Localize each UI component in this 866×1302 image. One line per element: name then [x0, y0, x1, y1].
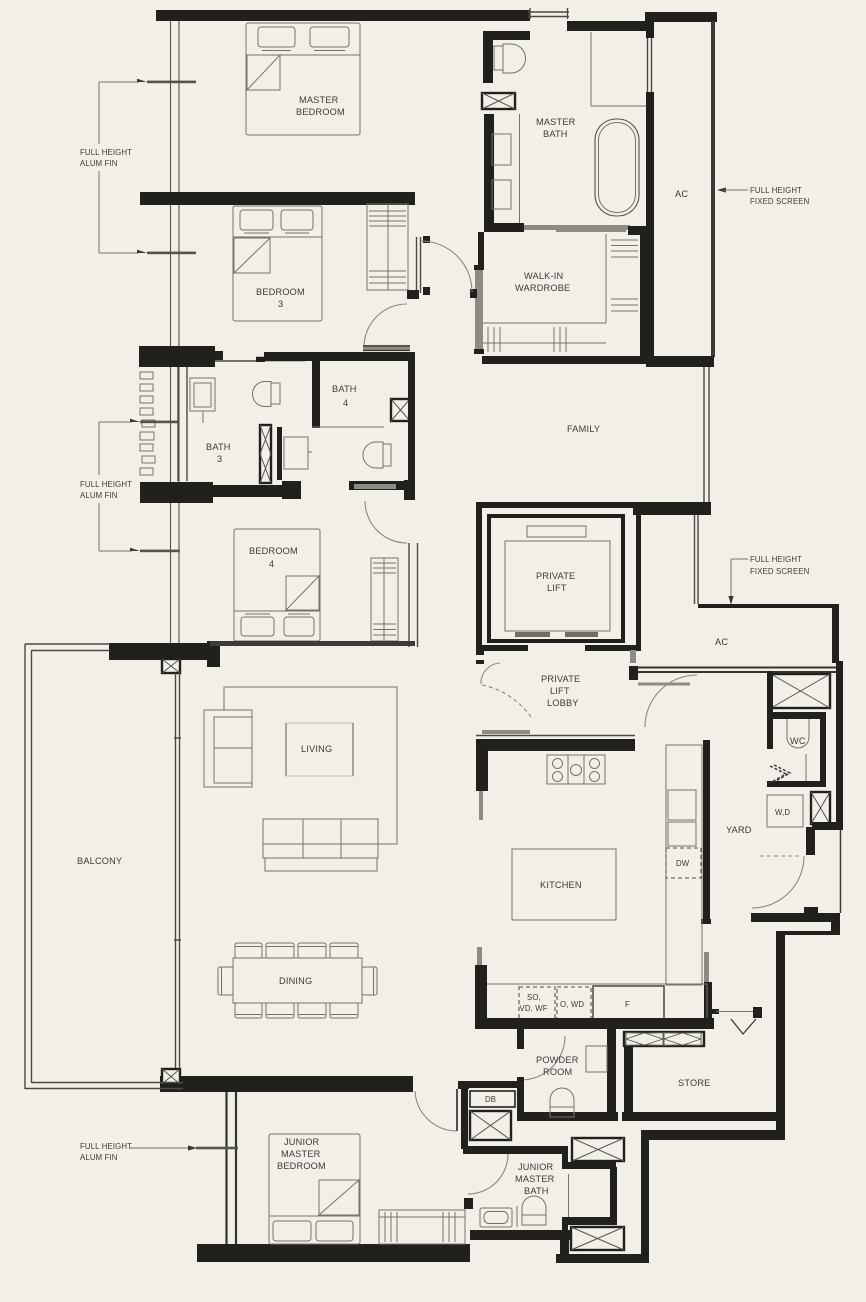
- svg-text:W,D: W,D: [775, 808, 790, 817]
- svg-text:DW: DW: [676, 859, 690, 868]
- svg-text:DINING: DINING: [279, 976, 312, 986]
- svg-text:FIXED SCREEN: FIXED SCREEN: [750, 567, 809, 576]
- svg-text:BATH: BATH: [206, 442, 231, 452]
- svg-text:POWDER: POWDER: [536, 1055, 579, 1065]
- svg-text:FULL HEIGHT: FULL HEIGHT: [750, 555, 802, 564]
- svg-text:YARD: YARD: [726, 825, 752, 835]
- svg-text:MASTER: MASTER: [515, 1174, 555, 1184]
- svg-text:3: 3: [217, 454, 222, 464]
- svg-text:PRIVATE: PRIVATE: [541, 674, 580, 684]
- svg-text:FIXED SCREEN: FIXED SCREEN: [750, 197, 809, 206]
- svg-text:BATH: BATH: [543, 129, 568, 139]
- svg-text:BEDROOM: BEDROOM: [256, 287, 305, 297]
- svg-text:MASTER: MASTER: [536, 117, 576, 127]
- svg-text:ALUM FIN: ALUM FIN: [80, 1153, 118, 1162]
- svg-text:WC: WC: [790, 736, 806, 746]
- svg-text:FULL HEIGHT: FULL HEIGHT: [80, 1142, 132, 1151]
- svg-text:O, WD: O, WD: [560, 1000, 584, 1009]
- svg-text:FULL HEIGHT: FULL HEIGHT: [80, 148, 132, 157]
- svg-text:WALK-IN: WALK-IN: [524, 271, 563, 281]
- svg-text:LIFT: LIFT: [547, 583, 567, 593]
- svg-text:AC: AC: [715, 637, 728, 647]
- svg-text:LOBBY: LOBBY: [547, 698, 579, 708]
- svg-text:STORE: STORE: [678, 1078, 710, 1088]
- svg-text:BEDROOM: BEDROOM: [249, 546, 298, 556]
- svg-text:DB: DB: [485, 1095, 496, 1104]
- svg-text:PRIVATE: PRIVATE: [536, 571, 575, 581]
- svg-text:AC: AC: [675, 189, 688, 199]
- svg-text:BEDROOM: BEDROOM: [277, 1161, 326, 1171]
- svg-text:ALUM FIN: ALUM FIN: [80, 491, 118, 500]
- svg-text:WARDROBE: WARDROBE: [515, 283, 570, 293]
- svg-text:4: 4: [269, 559, 274, 569]
- svg-text:MASTER: MASTER: [299, 95, 339, 105]
- svg-text:FAMILY: FAMILY: [567, 424, 600, 434]
- svg-text:BALCONY: BALCONY: [77, 856, 122, 866]
- svg-text:FULL HEIGHT: FULL HEIGHT: [750, 186, 802, 195]
- svg-text:F: F: [625, 1000, 630, 1009]
- svg-text:BATH: BATH: [332, 384, 357, 394]
- svg-text:LIFT: LIFT: [550, 686, 570, 696]
- svg-text:4: 4: [343, 398, 348, 408]
- svg-text:JUNIOR: JUNIOR: [284, 1137, 320, 1147]
- svg-text:LIVING: LIVING: [301, 744, 332, 754]
- svg-text:ALUM FIN: ALUM FIN: [80, 159, 118, 168]
- svg-text:MASTER: MASTER: [281, 1149, 321, 1159]
- svg-text:KITCHEN: KITCHEN: [540, 880, 582, 890]
- svg-text:JUNIOR: JUNIOR: [518, 1162, 554, 1172]
- svg-text:BATH: BATH: [524, 1186, 549, 1196]
- svg-text:ROOM: ROOM: [543, 1067, 572, 1077]
- svg-text:SO,: SO,: [527, 993, 541, 1002]
- svg-text:FULL HEIGHT: FULL HEIGHT: [80, 480, 132, 489]
- svg-text:VD, WF: VD, WF: [520, 1004, 548, 1013]
- svg-text:BEDROOM: BEDROOM: [296, 107, 345, 117]
- svg-text:3: 3: [278, 299, 283, 309]
